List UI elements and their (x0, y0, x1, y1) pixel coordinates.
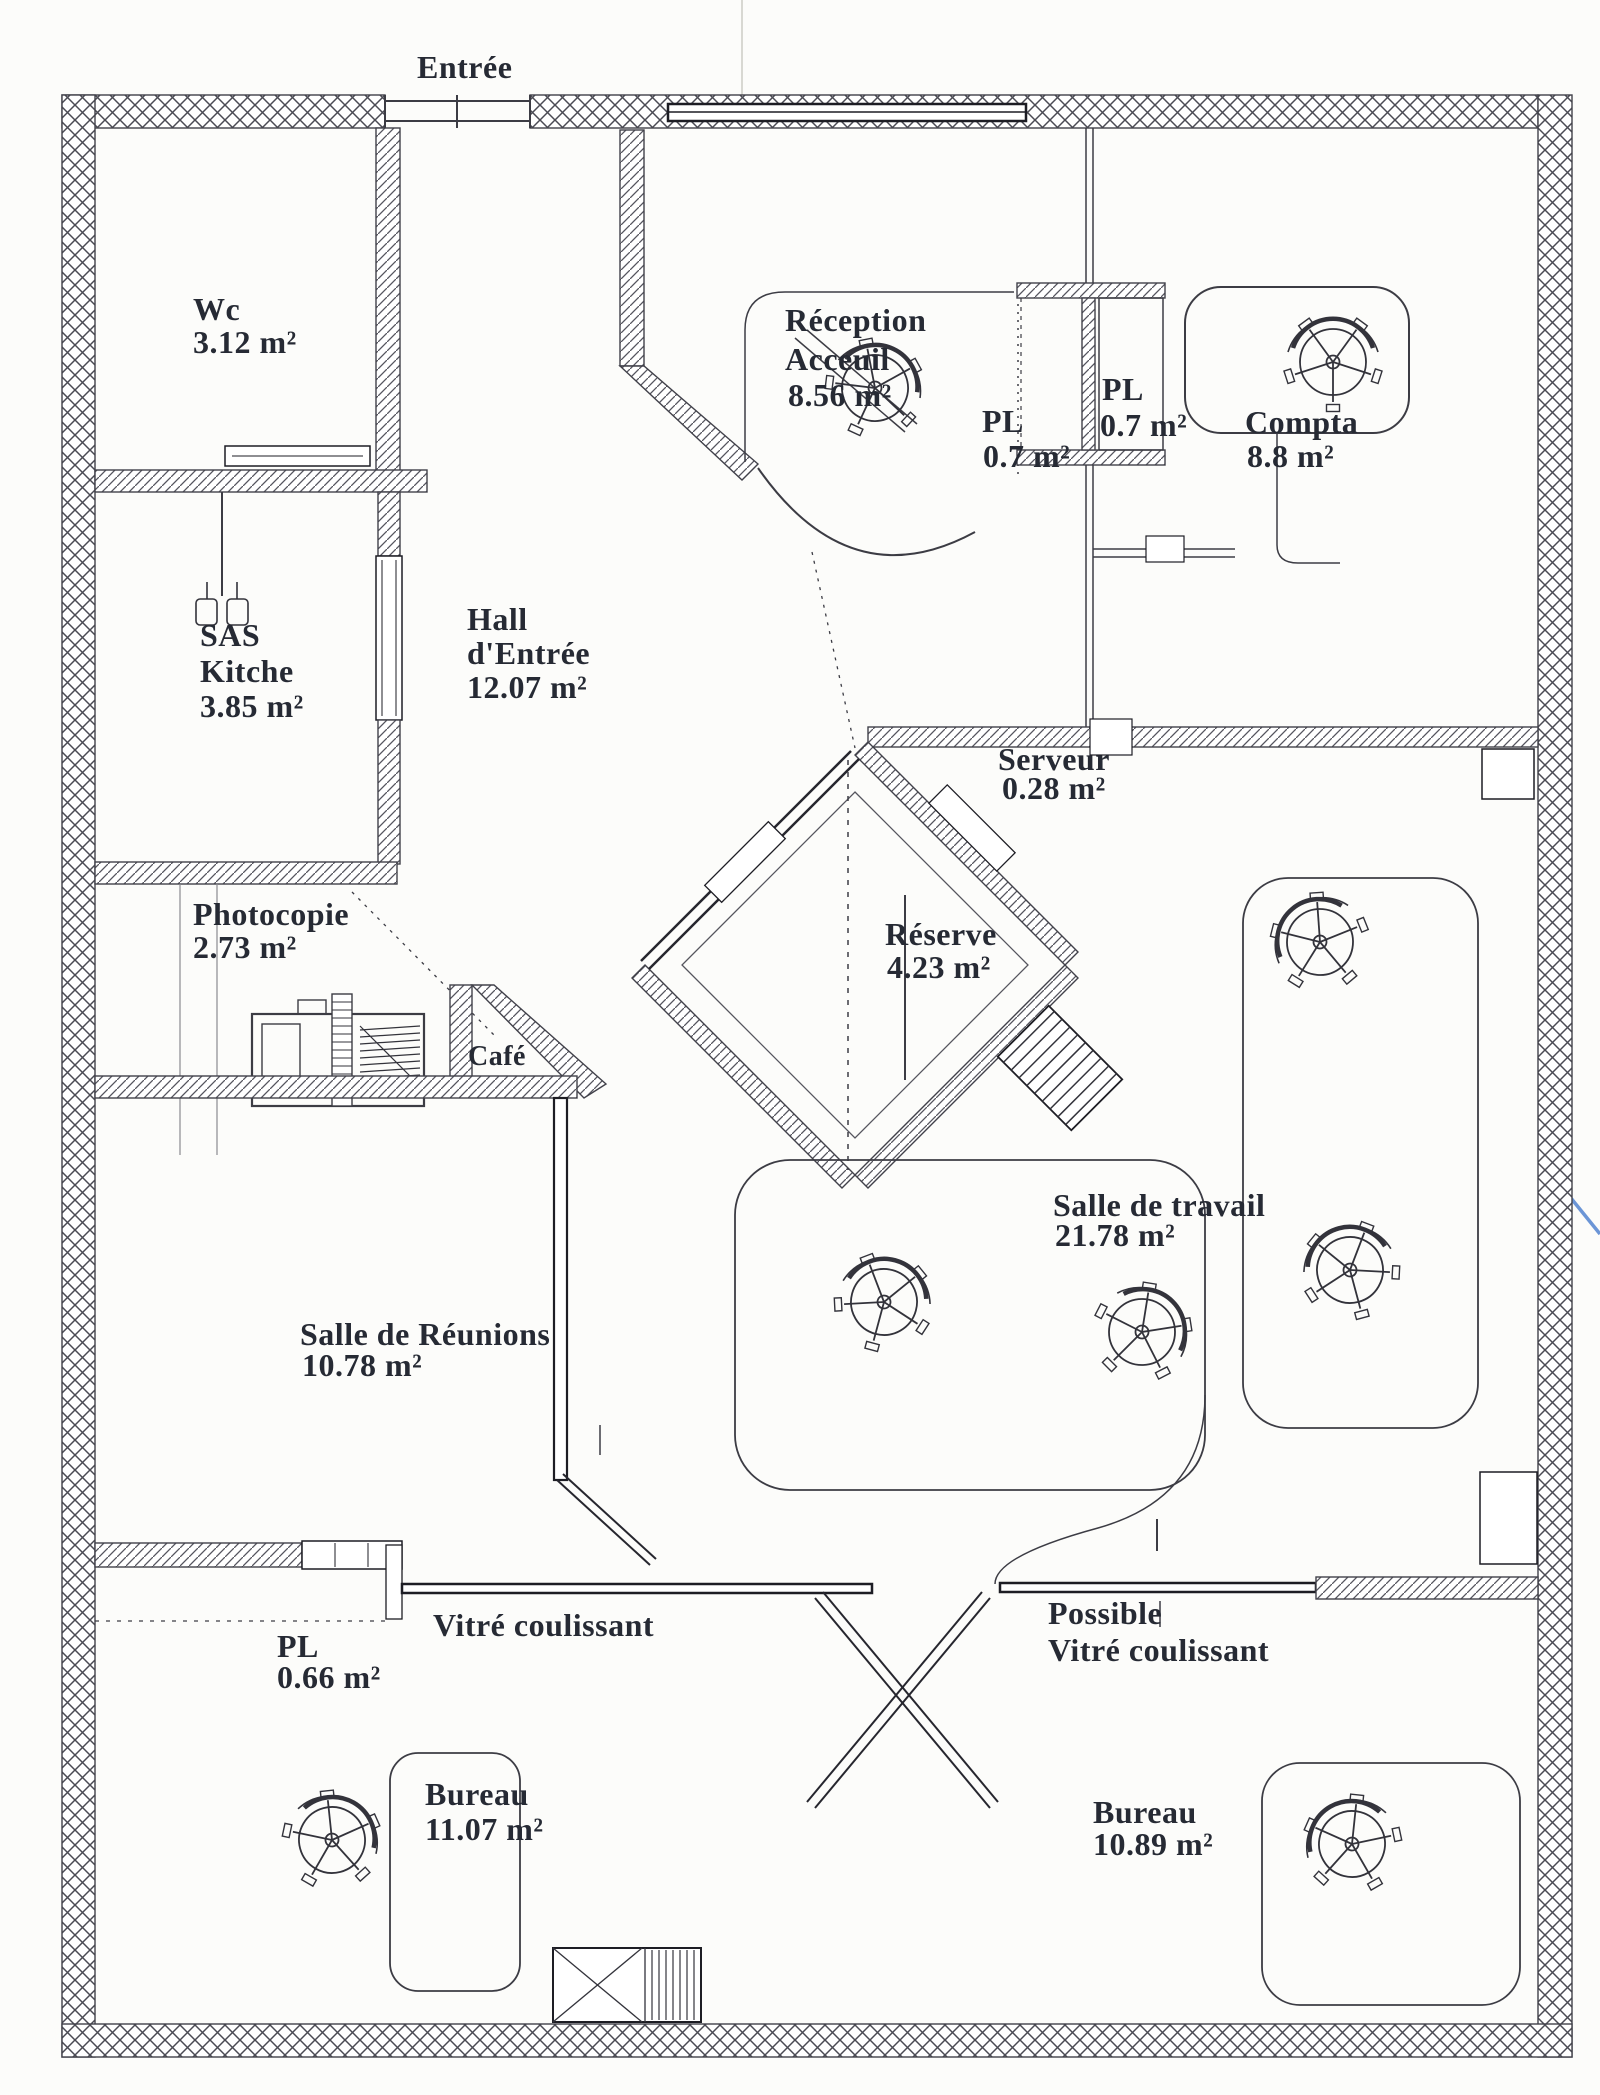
sliding-glass-wall (402, 1584, 872, 1593)
label-compta-name: Compta (1245, 404, 1358, 440)
reception-desk (758, 468, 975, 555)
label-entree: Entrée (417, 49, 512, 85)
label-reunions-area: 10.78 m² (302, 1347, 422, 1383)
room-sas-walls (0, 0, 402, 884)
label-reception-name2: Acceuil (785, 341, 890, 377)
door-icon (1146, 536, 1184, 562)
sliding-glass-wall (1000, 1583, 1316, 1592)
label-hall-name: Hall (467, 601, 528, 637)
office-chair-icon (1254, 877, 1389, 1012)
label-cafe: Café (468, 1041, 526, 1072)
label-possible-line1: Possible (1048, 1595, 1162, 1631)
label-reserve-name: Réserve (885, 916, 997, 952)
reserve-room (632, 742, 1122, 1188)
dashed-guides (352, 552, 855, 1038)
label-vitre-coulissant: Vitré coulissant (433, 1607, 654, 1643)
label-wc-name: Wc (193, 291, 240, 327)
label-reception-name: Réception (785, 302, 926, 338)
top-window-icon (668, 104, 1026, 121)
label-compta-area: 8.8 m² (1247, 438, 1334, 474)
label-sas-name2: Kitche (200, 653, 294, 689)
label-pl-left-area: 0.7 m² (983, 438, 1070, 474)
reunions-walls (95, 1098, 872, 1621)
label-photocopie-area: 2.73 m² (193, 929, 297, 965)
office-chair-icon (1072, 1266, 1207, 1401)
office-chair-icon (1291, 1215, 1410, 1331)
wall-niche (1480, 1472, 1537, 1564)
door-icon (376, 556, 402, 720)
label-pl-bottom-area: 0.66 m² (277, 1659, 381, 1695)
label-sas-name: SAS (200, 617, 260, 653)
label-bureau-droit-name: Bureau (1093, 1794, 1197, 1830)
door-icon (705, 822, 786, 903)
bureau-droit-furniture (1262, 1763, 1520, 2005)
wall-top-left (62, 95, 385, 128)
office-chair-icon (265, 1778, 397, 1908)
label-bureau-gauche-area: 11.07 m² (425, 1811, 543, 1847)
label-hall-area: 12.07 m² (467, 669, 587, 705)
label-reserve-area: 4.23 m² (887, 949, 991, 985)
label-bureau-droit-area: 10.89 m² (1093, 1826, 1213, 1862)
office-chair-icon (824, 1247, 943, 1363)
label-possible-line2: Vitré coulissant (1048, 1632, 1269, 1668)
serveur-wall (868, 719, 1538, 799)
label-pl-right-name: PL (1102, 371, 1144, 407)
label-pl-left-name: PL (982, 403, 1024, 439)
junction-doors (807, 1592, 998, 1808)
label-photocopie-name: Photocopie (193, 896, 349, 932)
bottom-window-icon (553, 1948, 701, 2022)
wall-left (62, 95, 95, 2057)
label-sas-area: 3.85 m² (200, 688, 304, 724)
label-serveur-area: 0.28 m² (1002, 770, 1106, 806)
office-chair-icon (1284, 318, 1382, 411)
entrance-door (385, 95, 530, 128)
label-travail-area: 21.78 m² (1055, 1217, 1175, 1253)
label-wc-area: 3.12 m² (193, 324, 297, 360)
wall-right (1538, 95, 1572, 2057)
wall-bottom (62, 2024, 1572, 2057)
wall-niche (1482, 749, 1534, 799)
label-bureau-gauche-name: Bureau (425, 1776, 529, 1812)
desk (1262, 1763, 1520, 2005)
label-hall-name2: d'Entrée (467, 635, 590, 671)
room-wc-walls (95, 128, 427, 492)
floor-plan-drawing: Entrée Wc 3.12 m² Réception Acceuil 8.56… (0, 0, 1600, 2095)
label-reception-area: 8.56 m² (788, 377, 892, 413)
floor-plan-page: Entrée Wc 3.12 m² Réception Acceuil 8.56… (0, 0, 1600, 2095)
office-chair-icon (1288, 1782, 1420, 1912)
label-pl-right-area: 0.7 m² (1100, 407, 1187, 443)
